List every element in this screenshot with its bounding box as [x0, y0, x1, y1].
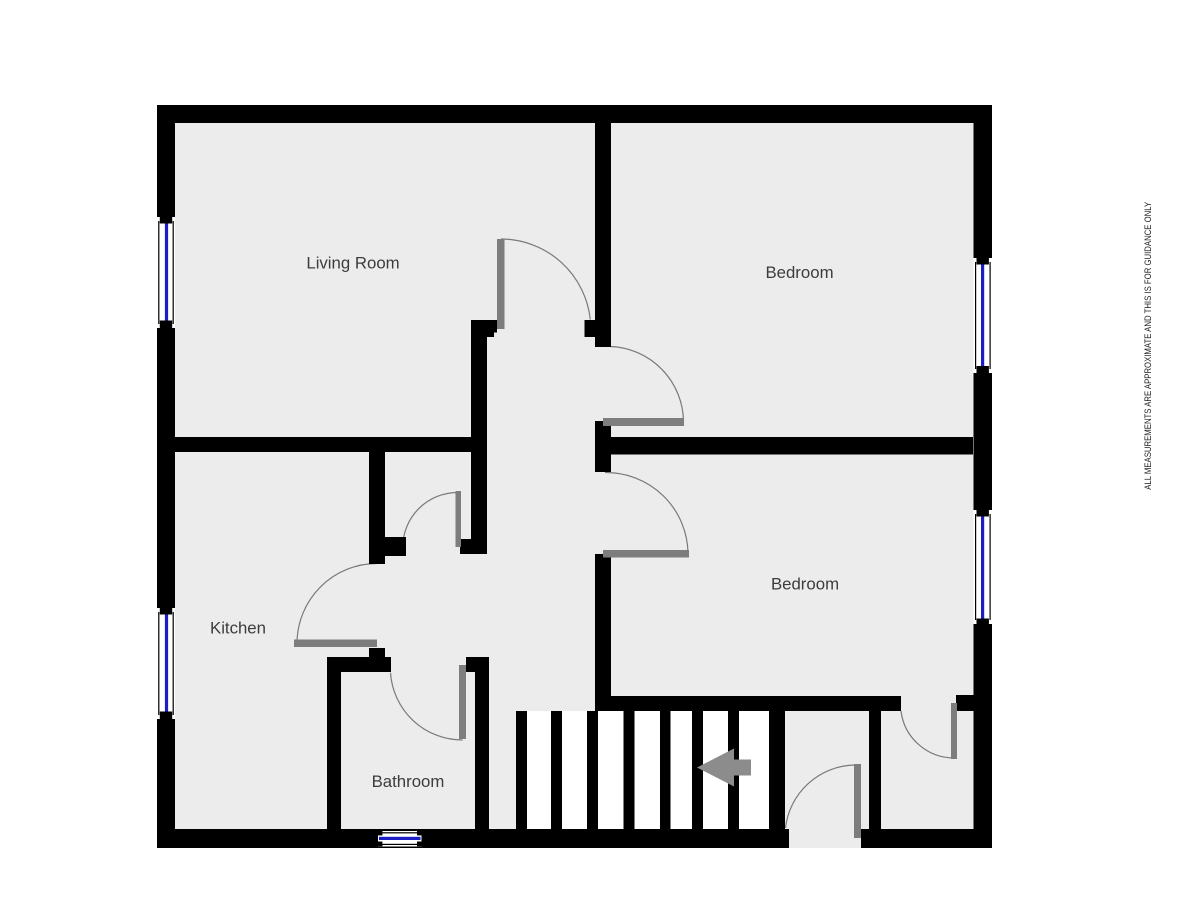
svg-text:Bedroom: Bedroom [771, 575, 839, 594]
svg-text:Bathroom: Bathroom [372, 772, 445, 791]
svg-text:ALL MEASUREMENTS ARE APPROXIMA: ALL MEASUREMENTS ARE APPROXIMATE AND THI… [1143, 201, 1154, 490]
svg-text:Bedroom: Bedroom [765, 263, 833, 282]
svg-text:Living Room: Living Room [306, 254, 399, 273]
svg-text:Kitchen: Kitchen [210, 619, 266, 638]
